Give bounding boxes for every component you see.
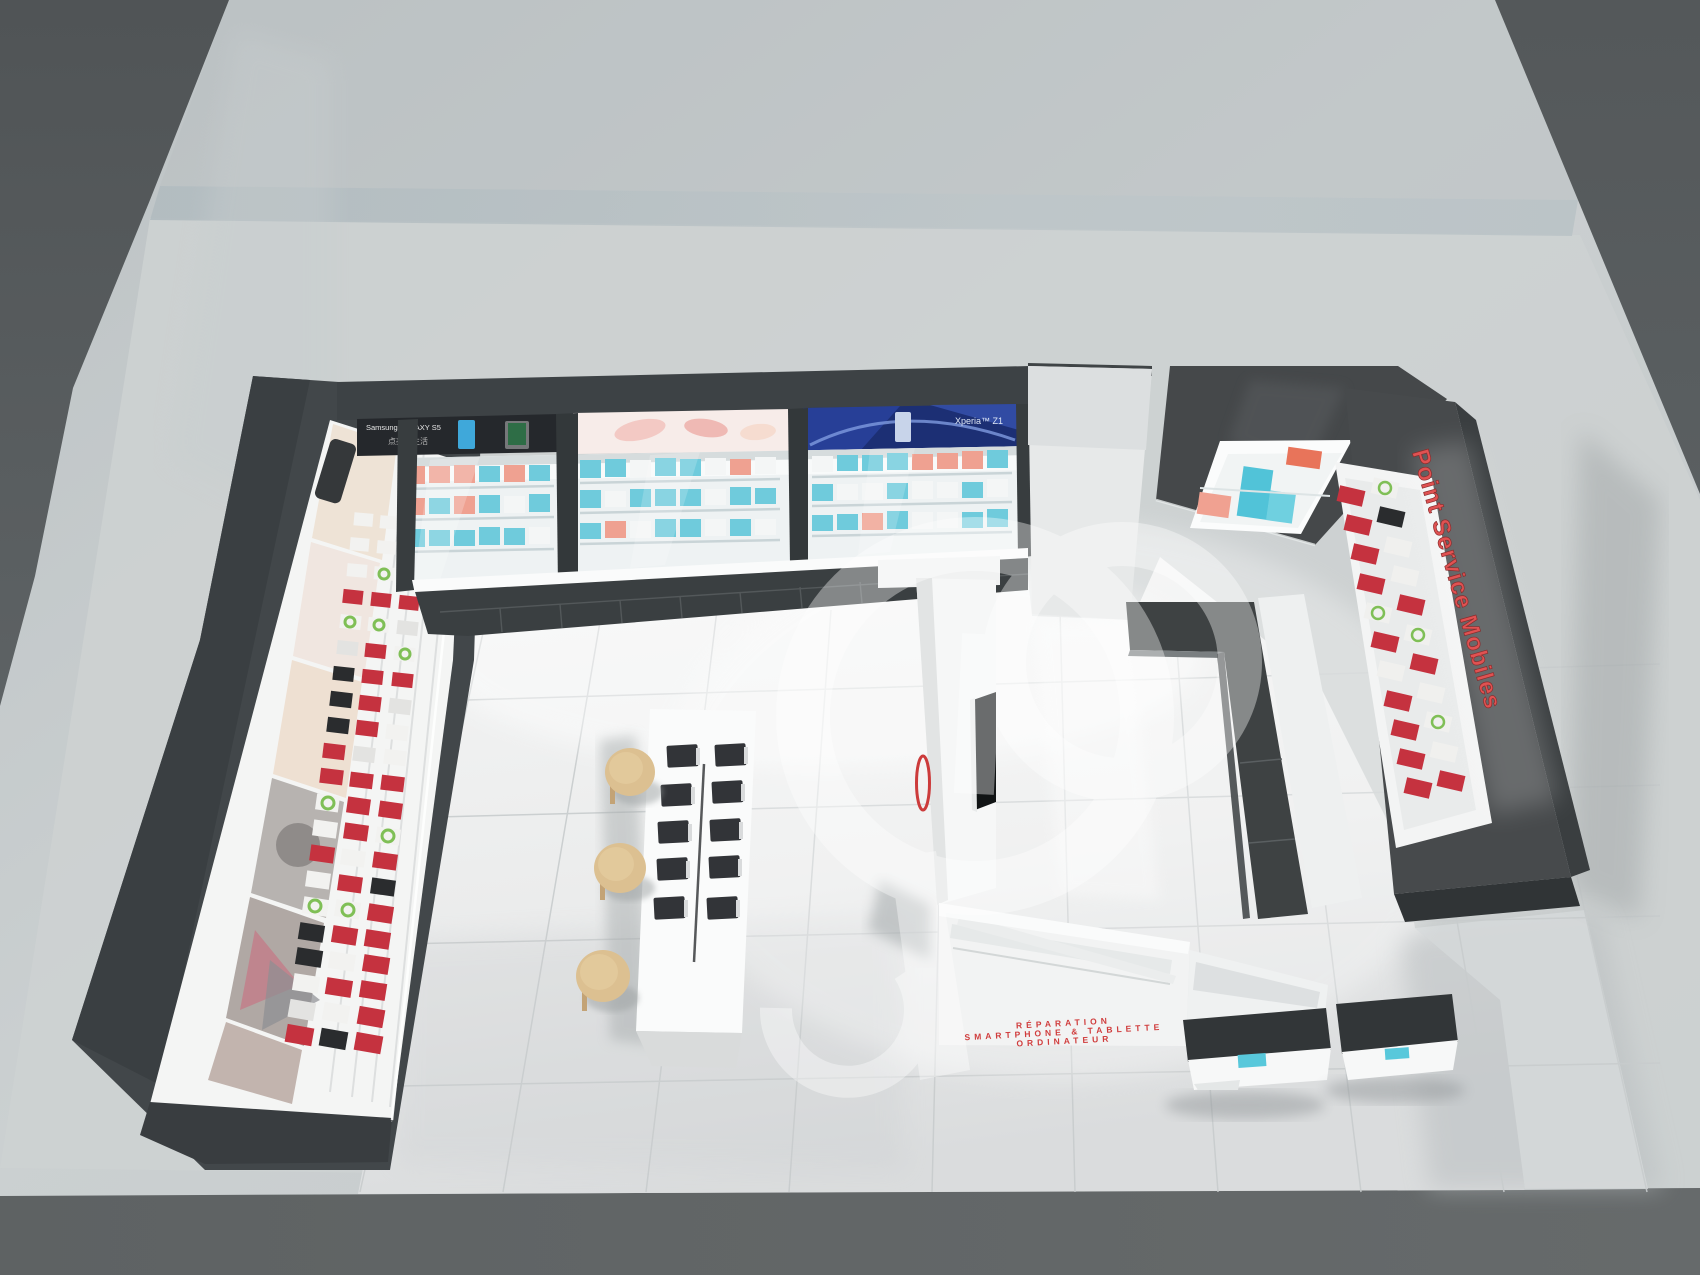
- svg-text:Xperia™ Z1: Xperia™ Z1: [955, 416, 1003, 426]
